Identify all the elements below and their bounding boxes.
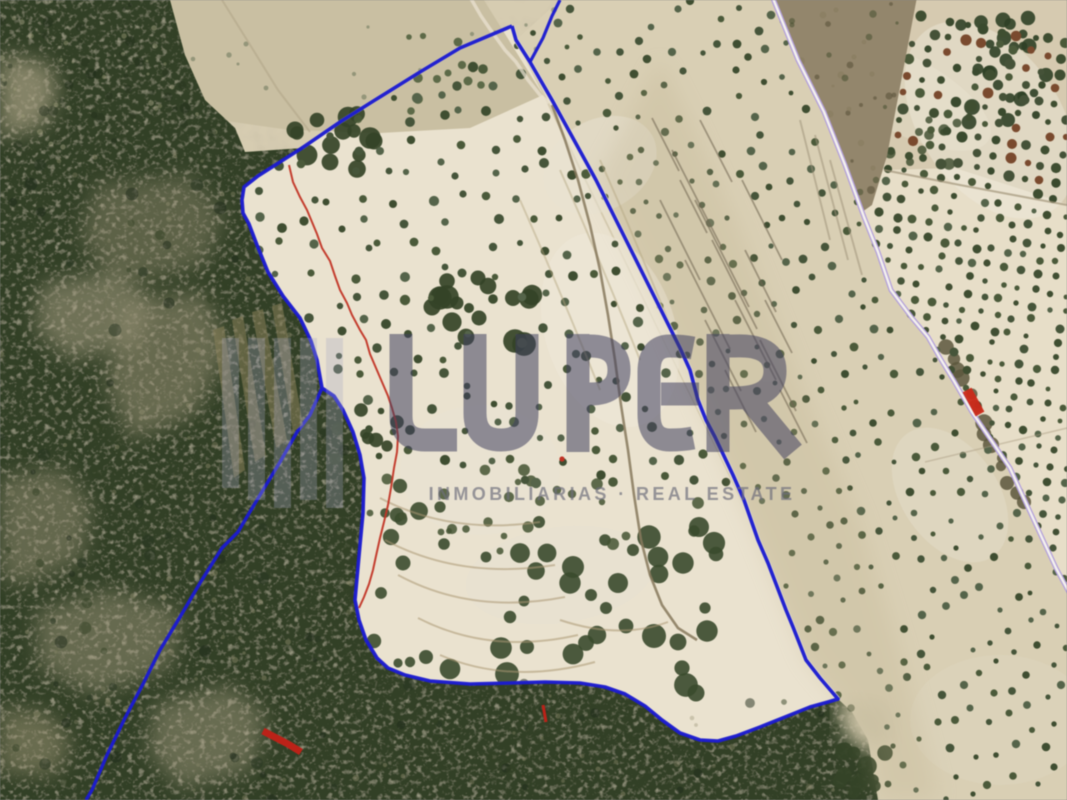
svg-text:INMOBILIARIAS · REAL ESTATE: INMOBILIARIAS · REAL ESTATE <box>429 484 796 504</box>
